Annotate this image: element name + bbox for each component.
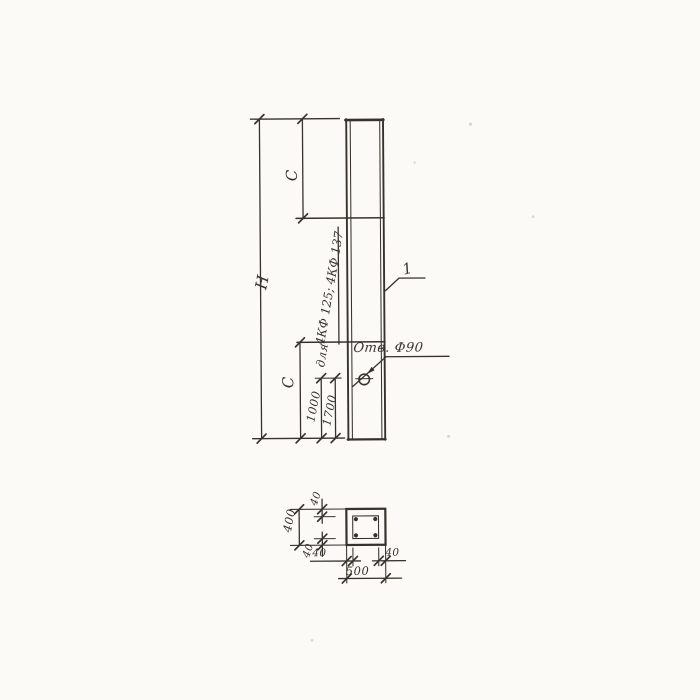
rebar-dots bbox=[354, 517, 378, 538]
dim-label-c-bottom: C bbox=[279, 376, 297, 388]
hole-marker: Отв. Ф90 bbox=[352, 340, 449, 386]
drawing-sheet: H C C 1000 1700 для 4КФ 125; 4КФ 137 Отв… bbox=[0, 0, 700, 700]
scan-noise bbox=[307, 122, 537, 641]
part-mark-label: 1 bbox=[400, 259, 414, 279]
hole-callout-label: Отв. Ф90 bbox=[353, 341, 425, 356]
part-mark: 1 bbox=[385, 259, 425, 291]
dim-label-c-top: C bbox=[283, 169, 301, 181]
dim-label-cover-left: 40 bbox=[311, 547, 326, 559]
dim-label-section-width: 500 bbox=[346, 564, 370, 578]
dim-label-cover-right: 40 bbox=[384, 547, 399, 559]
elevation-view: H C C 1000 1700 для 4КФ 125; 4КФ 137 Отв… bbox=[250, 113, 450, 443]
dim-label-section-height: 400 bbox=[280, 507, 299, 534]
series-note: для 4КФ 125; 4КФ 137 bbox=[312, 227, 347, 368]
series-note-label: 4КФ 125; 4КФ 137 bbox=[313, 230, 346, 347]
dim-label-hole-offset-b: 1700 bbox=[319, 393, 339, 427]
section-outline bbox=[346, 509, 385, 545]
section-view: 400 40 40 40 40 500 bbox=[279, 489, 405, 583]
technical-drawing-canvas: H C C 1000 1700 для 4КФ 125; 4КФ 137 Отв… bbox=[0, 0, 700, 700]
dim-label-height: H bbox=[251, 273, 273, 292]
